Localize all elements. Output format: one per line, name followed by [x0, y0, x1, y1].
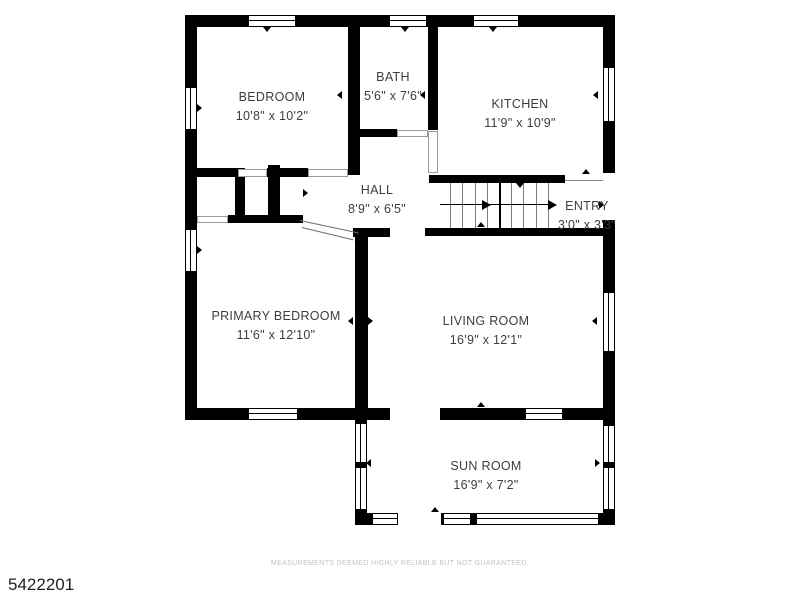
wall-kitchen-left [428, 27, 438, 130]
stair-arrowhead-icon [548, 200, 557, 210]
room-name: PRIMARY BEDROOM [211, 307, 340, 326]
marker-icon [263, 27, 271, 32]
stair-landing-divider [499, 183, 501, 228]
marker-icon [595, 459, 600, 467]
bedroom-closet-opening [238, 169, 267, 177]
window-kitchen-right [603, 67, 615, 122]
wall-closet-bottom [228, 215, 303, 223]
room-label-sun-room: SUN ROOM 16'9" x 7'2" [450, 457, 521, 495]
wall-primary-living-divider [355, 228, 368, 408]
room-name: KITCHEN [484, 95, 556, 114]
window-sunroom-bottom-1 [372, 513, 398, 525]
stair-tread [511, 183, 512, 228]
window-sunroom-bottom-3 [476, 513, 599, 525]
hall-primary-opening-line [300, 220, 359, 233]
marker-icon [593, 91, 598, 99]
marker-icon [431, 507, 439, 512]
room-label-living-room: LIVING ROOM 16'9" x 12'1" [443, 312, 530, 350]
marker-icon [516, 183, 524, 188]
room-label-primary-bedroom: PRIMARY BEDROOM 11'6" x 12'10" [211, 307, 340, 345]
stair-tread [536, 183, 537, 228]
primary-closet-opening [197, 216, 228, 223]
room-dimensions: 11'6" x 12'10" [211, 326, 340, 345]
marker-icon [337, 91, 342, 99]
window-bath-top [389, 15, 427, 27]
room-dimensions: 3'0" x 3'3" [558, 216, 616, 235]
room-dimensions: 8'9" x 6'5" [348, 200, 406, 219]
stair-tread [475, 183, 476, 228]
window-sunroom-left-1 [355, 423, 367, 463]
stair-tread [462, 183, 463, 228]
floorplan-canvas: BEDROOM 10'8" x 10'2" BATH 5'6" x 7'6" K… [0, 0, 800, 600]
marker-icon [477, 402, 485, 407]
room-label-bath: BATH 5'6" x 7'6" [364, 68, 422, 106]
listing-id: 5422201 [8, 575, 74, 595]
stair-arrowhead-icon [482, 200, 491, 210]
bedroom-door-opening [308, 169, 348, 177]
room-dimensions: 16'9" x 12'1" [443, 331, 530, 350]
marker-icon [197, 104, 202, 112]
room-label-kitchen: KITCHEN 11'9" x 10'9" [484, 95, 556, 133]
marker-icon [348, 317, 353, 325]
bath-door-opening [397, 130, 428, 137]
marker-icon [303, 189, 308, 197]
kitchen-doorway-opening [428, 131, 438, 173]
sunroom-door-opening [398, 513, 441, 525]
window-primary-left [185, 229, 197, 272]
wall-bath-bottom [348, 129, 397, 137]
room-name: LIVING ROOM [443, 312, 530, 331]
window-living-right [603, 292, 615, 352]
measurements-disclaimer: MEASUREMENTS DEEMED HIGHLY RELIABLE BUT … [271, 560, 529, 567]
room-name: ENTRY [558, 197, 616, 216]
wall-left [185, 15, 197, 420]
stair-direction-line [440, 204, 554, 205]
window-bedroom-top [248, 15, 296, 27]
room-name: HALL [348, 181, 406, 200]
marker-icon [477, 222, 485, 227]
wall-stairs-top [429, 175, 565, 183]
room-label-hall: HALL 8'9" x 6'5" [348, 181, 406, 219]
window-sunroom-left-2 [355, 467, 367, 510]
room-dimensions: 5'6" x 7'6" [364, 87, 422, 106]
wall-bedroom-south-a [185, 168, 238, 177]
marker-icon [368, 317, 373, 325]
staircase [438, 183, 560, 228]
room-dimensions: 10'8" x 10'2" [236, 107, 308, 126]
room-label-entry: ENTRY 3'0" x 3'3" [558, 197, 616, 235]
kitchen-entry-divider-line [565, 180, 603, 181]
room-name: BEDROOM [236, 88, 308, 107]
marker-icon [582, 169, 590, 174]
marker-icon [592, 317, 597, 325]
stair-tread [523, 183, 524, 228]
window-primary-bottom [248, 408, 298, 420]
window-bedroom-left [185, 87, 197, 130]
room-label-bedroom: BEDROOM 10'8" x 10'2" [236, 88, 308, 126]
window-sunroom-right-1 [603, 425, 615, 463]
window-living-bottom [525, 408, 563, 420]
room-dimensions: 11'9" x 10'9" [484, 114, 556, 133]
marker-icon [489, 27, 497, 32]
window-sunroom-bottom-2 [443, 513, 471, 525]
stair-tread [450, 183, 451, 228]
window-kitchen-top [473, 15, 519, 27]
wall-bath-left [348, 27, 360, 175]
marker-icon [197, 246, 202, 254]
window-sunroom-right-2 [603, 467, 615, 510]
marker-icon [401, 27, 409, 32]
room-dimensions: 16'9" x 7'2" [450, 476, 521, 495]
room-name: SUN ROOM [450, 457, 521, 476]
room-name: BATH [364, 68, 422, 87]
